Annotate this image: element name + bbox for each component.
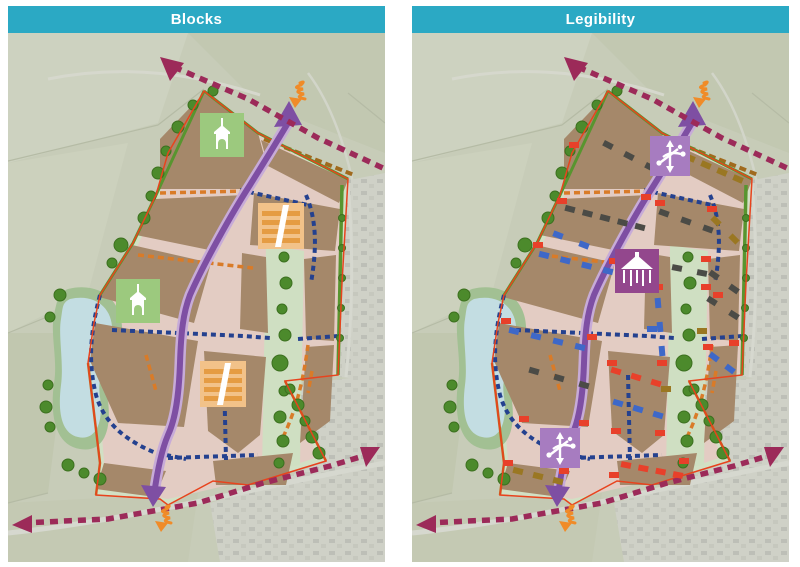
- mews-grid-icon: [200, 361, 246, 407]
- blocks-panel-title: Blocks: [171, 11, 223, 28]
- building-red: [533, 242, 543, 248]
- building-red: [587, 334, 597, 340]
- building-red: [519, 416, 529, 422]
- church-icon: [116, 279, 160, 323]
- building-red: [655, 200, 665, 206]
- building-blue: [655, 298, 662, 308]
- legibility-panel: Legibility: [412, 6, 789, 562]
- building-olive: [697, 328, 707, 334]
- blocks-panel-header: Blocks: [8, 6, 385, 33]
- building-red: [729, 340, 739, 346]
- building-red: [609, 472, 619, 478]
- junction-node-icon: [540, 428, 580, 468]
- blocks-map: [8, 33, 385, 562]
- building-red: [641, 194, 651, 200]
- building-blue: [647, 326, 657, 332]
- building-red: [655, 430, 665, 436]
- building-red: [503, 460, 513, 466]
- two-panel-masterplan-figure: Blocks Legibility: [0, 0, 800, 567]
- building-red: [557, 198, 567, 204]
- building-red: [713, 292, 723, 298]
- building-red: [611, 428, 621, 434]
- building-red: [657, 360, 667, 366]
- building-red: [707, 206, 717, 212]
- legibility-panel-title: Legibility: [566, 11, 636, 28]
- building-blue: [657, 322, 664, 332]
- building-red: [579, 420, 589, 426]
- building-red: [607, 360, 617, 366]
- building-red: [569, 142, 579, 148]
- church-icon: [200, 113, 244, 157]
- bandstand-icon: [615, 249, 659, 293]
- junction-node-icon: [650, 136, 690, 176]
- building-blue: [659, 346, 666, 356]
- building-red: [701, 256, 711, 262]
- building-red: [559, 468, 569, 474]
- building-olive: [661, 386, 671, 392]
- building-red: [501, 318, 511, 324]
- legibility-panel-header: Legibility: [412, 6, 789, 33]
- building-red: [703, 344, 713, 350]
- mews-grid-icon: [258, 203, 304, 249]
- building-red: [701, 284, 711, 290]
- legibility-map: [412, 33, 789, 562]
- blocks-panel: Blocks: [8, 6, 385, 562]
- building-red: [679, 458, 689, 464]
